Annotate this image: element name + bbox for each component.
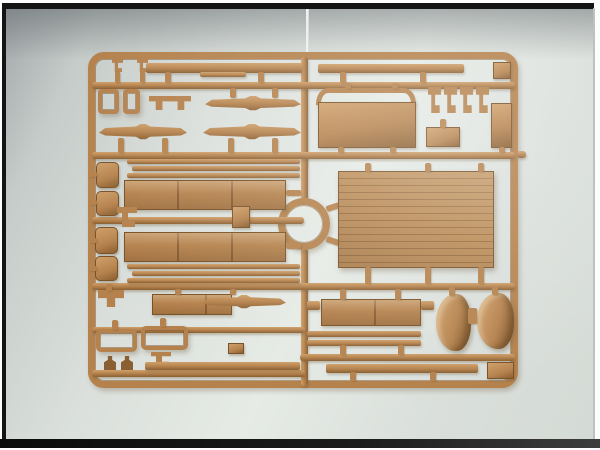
lug-tailgate-b xyxy=(395,289,401,300)
lug-smallboard-b xyxy=(230,289,236,295)
lug-strip1-a xyxy=(165,72,171,83)
notched-strip-bottom xyxy=(145,362,300,370)
lug-tallplate xyxy=(499,147,505,153)
thin-strip-1c xyxy=(127,173,300,178)
sprue-layer xyxy=(0,0,600,450)
tall-plate-right xyxy=(491,103,512,148)
lug-strip3-a xyxy=(340,345,346,355)
cargo-floor-panel xyxy=(338,171,494,268)
lug-floor-bottom-a xyxy=(365,267,371,284)
lug-strip1-b xyxy=(258,72,264,83)
pad-2 xyxy=(96,191,119,216)
wing-strip-left xyxy=(307,301,320,310)
small-bracket-l xyxy=(228,343,244,354)
lug-frontboard-a xyxy=(338,147,344,153)
lug-floor-top-c xyxy=(478,163,484,172)
thin-strip-2c xyxy=(127,278,300,283)
small-box-mid xyxy=(426,127,460,147)
front-board xyxy=(318,102,416,148)
lug-board-right-a xyxy=(286,190,301,196)
lug-tpart xyxy=(106,284,112,291)
lug-tailgate-a xyxy=(340,289,346,300)
lug-fender-2 xyxy=(492,286,498,295)
coupler-part xyxy=(232,206,250,228)
fender-1 xyxy=(436,294,471,351)
lug-spring3-b xyxy=(272,138,278,153)
left-border-bar xyxy=(2,3,6,439)
lug-wframe-1 xyxy=(112,320,118,330)
thin-strip-2b xyxy=(132,271,300,276)
window-frame-small-1 xyxy=(98,89,119,114)
thin-strip-1a xyxy=(127,159,300,164)
right-edge-line xyxy=(593,8,595,439)
lug-floor-bottom-c xyxy=(478,267,484,284)
lug-spring2-b xyxy=(162,138,168,153)
lug-pad-2 xyxy=(89,200,97,205)
photo-of-model-sprue xyxy=(0,0,600,450)
thin-strip-3b xyxy=(307,340,421,346)
lug-ladder-a xyxy=(350,372,356,381)
lug-spring2-a xyxy=(118,138,124,153)
lug-fender-1 xyxy=(449,287,455,296)
lug-pad-1 xyxy=(89,172,97,177)
lug-smallboard-a xyxy=(175,289,181,295)
lug-strip2-a xyxy=(340,72,346,83)
long-strip-left-step xyxy=(200,72,246,77)
lug-boxmid xyxy=(440,119,446,128)
ladder-strip xyxy=(326,364,478,373)
lug-strip2-b xyxy=(420,72,426,83)
lug-pad-3 xyxy=(89,238,97,243)
lug-spring1-a xyxy=(230,88,236,98)
small-box-bottom xyxy=(487,362,514,379)
thin-strip-1b xyxy=(132,166,300,171)
lug-frontboard-b xyxy=(390,147,396,153)
lug-board-right-b xyxy=(286,243,301,249)
side-board-lower xyxy=(124,232,286,262)
wing-strip-right xyxy=(421,301,434,310)
runner-vertical-bottom xyxy=(301,248,308,386)
tailgate-board xyxy=(321,299,421,326)
pad-4 xyxy=(95,256,118,281)
lug-clip1 xyxy=(115,71,120,83)
lug-clip2 xyxy=(140,71,145,83)
side-board-upper xyxy=(124,180,286,210)
windshield-frame-2 xyxy=(141,326,188,350)
top-border-bar xyxy=(2,3,594,9)
lug-arch-b xyxy=(392,83,398,89)
lug-wframe-2 xyxy=(160,318,166,327)
lug-pad-4 xyxy=(89,266,97,271)
lug-floor-top-b xyxy=(425,163,431,172)
runner-horizontal-5-right xyxy=(300,354,515,361)
thin-strip-3a xyxy=(307,331,421,337)
fender-link xyxy=(468,308,477,324)
thin-strip-2a xyxy=(127,264,300,269)
runner-vertical-top xyxy=(301,57,308,200)
frame-outer-stub-right xyxy=(517,151,526,158)
small-plate-topright xyxy=(493,62,511,79)
lug-floor-bottom-b xyxy=(425,267,431,284)
lug-floor-top-a xyxy=(365,163,371,172)
lug-strip3-b xyxy=(398,345,404,355)
runner-horizontal-2 xyxy=(92,152,515,159)
fender-2 xyxy=(477,293,514,349)
lug-spring3-a xyxy=(228,138,234,153)
lug-arch-a xyxy=(345,83,351,89)
lug-spring1-b xyxy=(272,88,278,98)
lug-ladder-b xyxy=(430,372,436,381)
bottom-border-bar xyxy=(0,439,600,448)
pad-1 xyxy=(96,162,119,188)
windshield-frame-1 xyxy=(96,329,137,352)
window-frame-small-2 xyxy=(123,89,140,114)
runner-horizontal-6-left xyxy=(92,370,305,377)
pad-3 xyxy=(95,227,118,254)
